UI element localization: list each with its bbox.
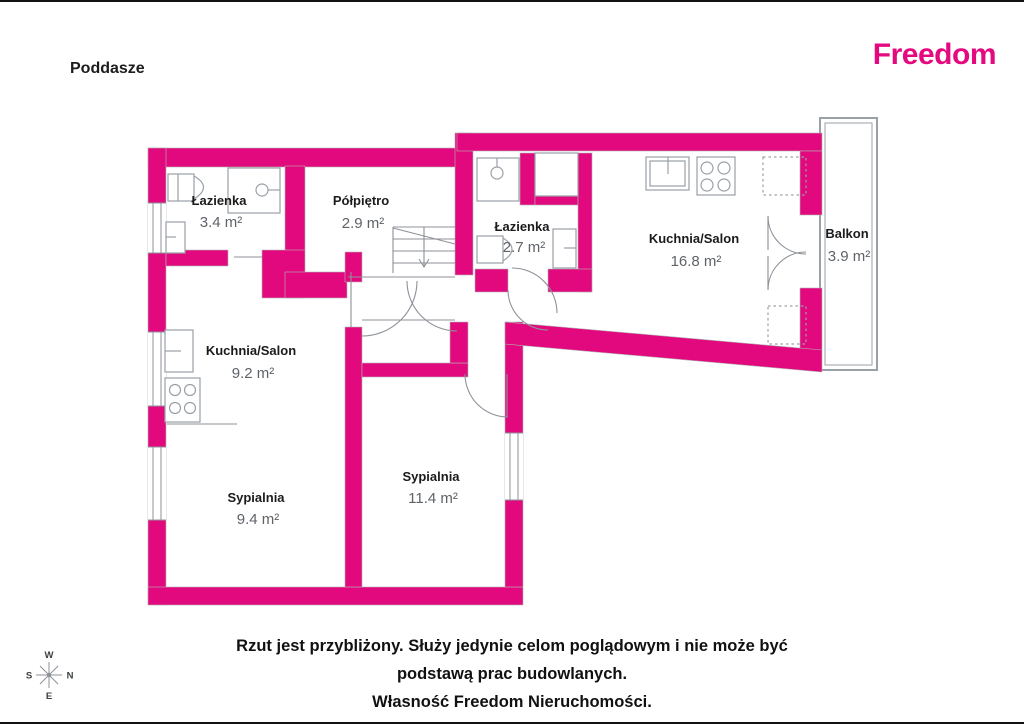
sink-icon — [646, 157, 689, 190]
svg-text:2.9 m²: 2.9 m² — [342, 215, 385, 232]
svg-text:3.9 m²: 3.9 m² — [828, 248, 871, 265]
svg-text:2.7 m²: 2.7 m² — [503, 239, 546, 256]
svg-text:Łazienka: Łazienka — [495, 219, 551, 234]
svg-text:Łazienka: Łazienka — [192, 193, 248, 208]
svg-text:3.4 m²: 3.4 m² — [200, 214, 243, 231]
svg-text:Półpiętro: Półpiętro — [333, 193, 389, 208]
window — [148, 332, 166, 406]
svg-text:16.8 m²: 16.8 m² — [671, 253, 722, 270]
stairs-icon — [348, 227, 455, 327]
svg-text:9.4 m²: 9.4 m² — [237, 511, 280, 528]
stove-icon — [165, 378, 200, 422]
disclaimer-line: Własność Freedom Nieruchomości. — [0, 688, 1024, 716]
wardrobe-icon — [535, 153, 578, 196]
floorplan-page: Poddasze Freedom — [0, 0, 1024, 724]
sink-icon — [166, 222, 185, 253]
door-arc — [407, 281, 457, 331]
svg-text:Sypialnia: Sypialnia — [227, 490, 285, 505]
room-label-kuchnia-salon-16: Kuchnia/Salon 16.8 m² — [649, 231, 739, 270]
svg-text:Balkon: Balkon — [825, 226, 868, 241]
svg-text:Kuchnia/Salon: Kuchnia/Salon — [649, 231, 739, 246]
balcony-door-icon — [768, 216, 806, 290]
door-arc — [362, 281, 417, 336]
svg-text:Kuchnia/Salon: Kuchnia/Salon — [206, 343, 296, 358]
disclaimer-line: podstawą prac budowlanych. — [0, 660, 1024, 688]
wardrobe-dashed-icon — [763, 157, 806, 344]
disclaimer: Rzut jest przybliżony. Służy jedynie cel… — [0, 632, 1024, 716]
room-label-sypialnia-11: Sypialnia 11.4 m² — [402, 469, 460, 507]
svg-text:Sypialnia: Sypialnia — [402, 469, 460, 484]
stove-icon — [697, 157, 735, 195]
window — [505, 433, 523, 500]
window — [148, 203, 166, 253]
room-label-polpietro: Półpiętro 2.9 m² — [333, 193, 389, 232]
balcony-outline — [820, 118, 877, 370]
disclaimer-line: Rzut jest przybliżony. Służy jedynie cel… — [0, 632, 1024, 660]
svg-text:9.2 m²: 9.2 m² — [232, 365, 275, 382]
shower-icon — [477, 158, 519, 201]
sink-icon — [165, 330, 193, 372]
room-label-kuchnia-salon-9: Kuchnia/Salon 9.2 m² — [206, 343, 296, 382]
svg-text:11.4 m²: 11.4 m² — [408, 490, 458, 507]
room-label-sypialnia-9: Sypialnia 9.4 m² — [227, 490, 285, 528]
floor-plan: Łazienka 3.4 m² Półpiętro 2.9 m² Łazienk… — [0, 0, 1024, 724]
door-arc — [465, 374, 508, 417]
cabinet-icon — [553, 229, 576, 268]
window — [148, 447, 166, 520]
